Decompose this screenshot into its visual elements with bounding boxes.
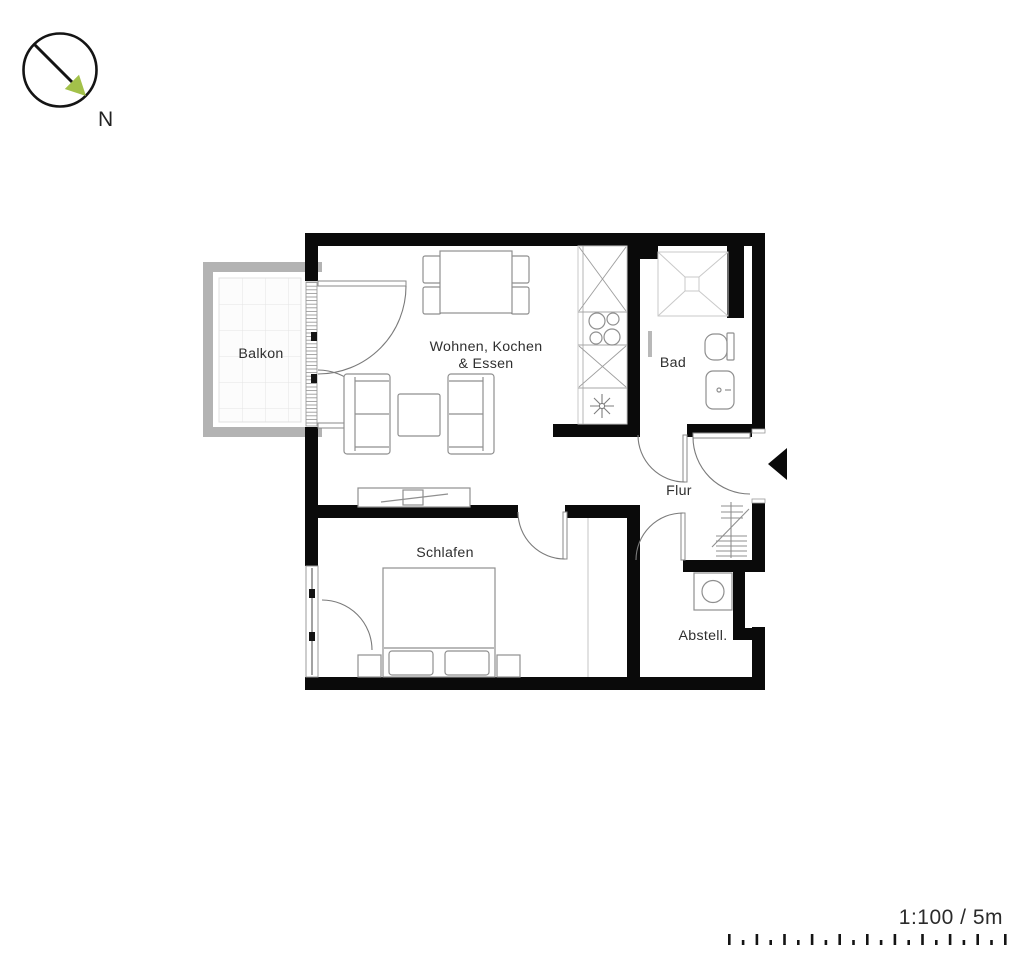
north-compass-icon: N [24,34,114,132]
shower-icon [658,252,728,316]
room-label-flur: Flur [666,483,692,499]
apartment-walls [305,233,765,690]
pillow [445,651,489,675]
entrance-arrow-icon [768,448,787,480]
room-label-bad: Bad [660,355,686,371]
room-bad: Bad [648,252,734,409]
entrance-door [693,429,765,503]
nightstand-right [497,655,520,677]
room-label-balkon: Balkon [238,346,283,362]
room-label-abstell: Abstell. [679,628,728,644]
floor-plan-page: N Balkon [0,0,1024,960]
room-schlafen: Schlafen [358,518,588,677]
toilet-icon [705,333,734,360]
dining-set [423,251,529,314]
bed [383,568,495,677]
room-label-wohnen-1: Wohnen, Kochen [430,339,543,355]
storage-door [636,513,685,560]
room-flur: Flur [666,483,749,558]
storage-shaft-wall [733,572,745,628]
balcony-door-leaf [318,281,406,286]
floor-plan-canvas: N Balkon [0,0,1024,960]
balcony-wall-left [203,262,213,437]
room-label-schlafen: Schlafen [416,545,474,561]
bath-door [638,435,687,482]
towel-rail [648,331,652,357]
balcony-wall-bottom [203,427,322,437]
scale-ruler-ticks [728,934,1007,945]
coat-rack-icon [712,502,749,558]
kitchen-counter [578,246,627,424]
scale-label: 1:100 / 5m [899,906,1003,929]
pillow [389,651,433,675]
washbasin-icon [706,371,734,409]
sofa-left [344,374,390,454]
bath-shaft-wall [727,246,744,318]
bedroom-door [518,512,567,559]
room-balkon: Balkon [203,262,322,437]
balcony-wall-top [203,262,322,272]
tv-sideboard-icon [358,488,470,507]
coffee-table [398,394,440,436]
sofa-right [448,374,494,454]
room-label-wohnen-2: & Essen [459,356,514,372]
north-label: N [98,108,113,131]
washing-machine-icon [694,573,732,610]
nightstand-left [358,655,381,677]
room-abstell: Abstell. [679,573,732,644]
scale-bar: 1:100 / 5m [728,906,1007,945]
